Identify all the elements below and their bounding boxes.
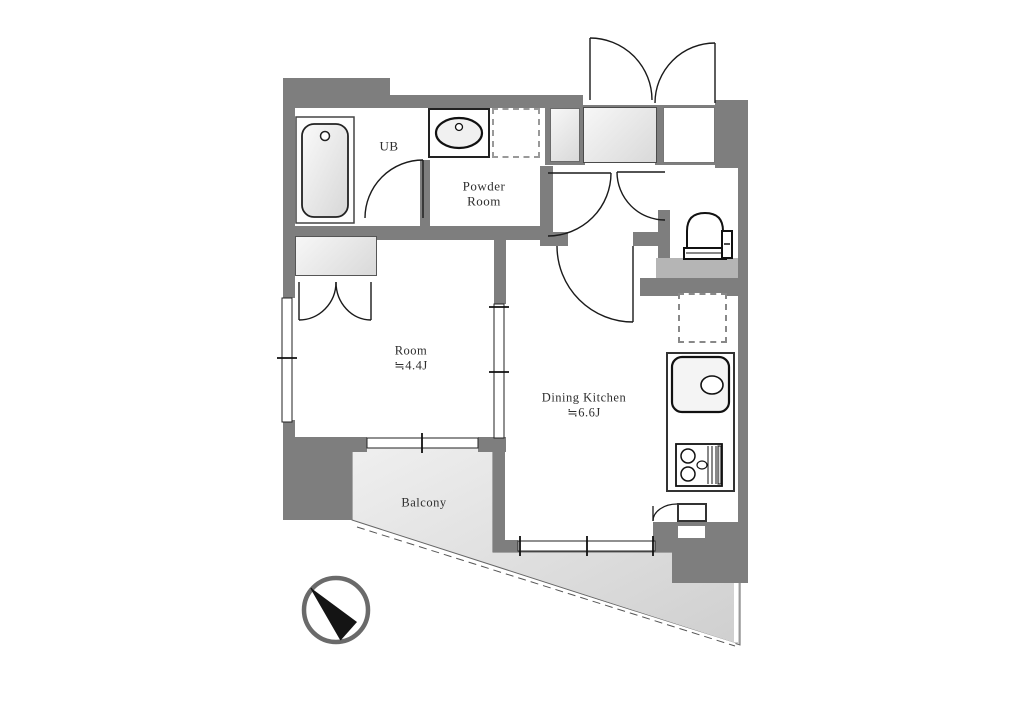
kitchen-closet-door (653, 504, 677, 521)
entrance-door-right (655, 43, 715, 103)
window-room-bottom (367, 433, 478, 453)
stove-icon (676, 444, 722, 486)
toilet-icon (684, 213, 732, 259)
fixtures-layer (0, 0, 1022, 702)
window-room-left (277, 298, 297, 422)
toilet-door (617, 172, 665, 220)
entrance-door-left (590, 38, 652, 100)
window-dk-bottom (518, 536, 655, 556)
washbasin-icon (436, 118, 482, 148)
ub-door (365, 160, 423, 218)
kitchen-sink-icon (672, 357, 729, 412)
dining-kitchen-door (557, 246, 633, 322)
bathtub-icon (296, 117, 354, 223)
compass-icon (304, 578, 368, 642)
powder-room-door (548, 173, 611, 236)
floor-plan: UB Powder Room W SB Ent. MB CL Room ≒4.4… (0, 0, 1022, 702)
room-closet-doors (299, 282, 371, 320)
window-partition-room-dk (489, 304, 509, 438)
